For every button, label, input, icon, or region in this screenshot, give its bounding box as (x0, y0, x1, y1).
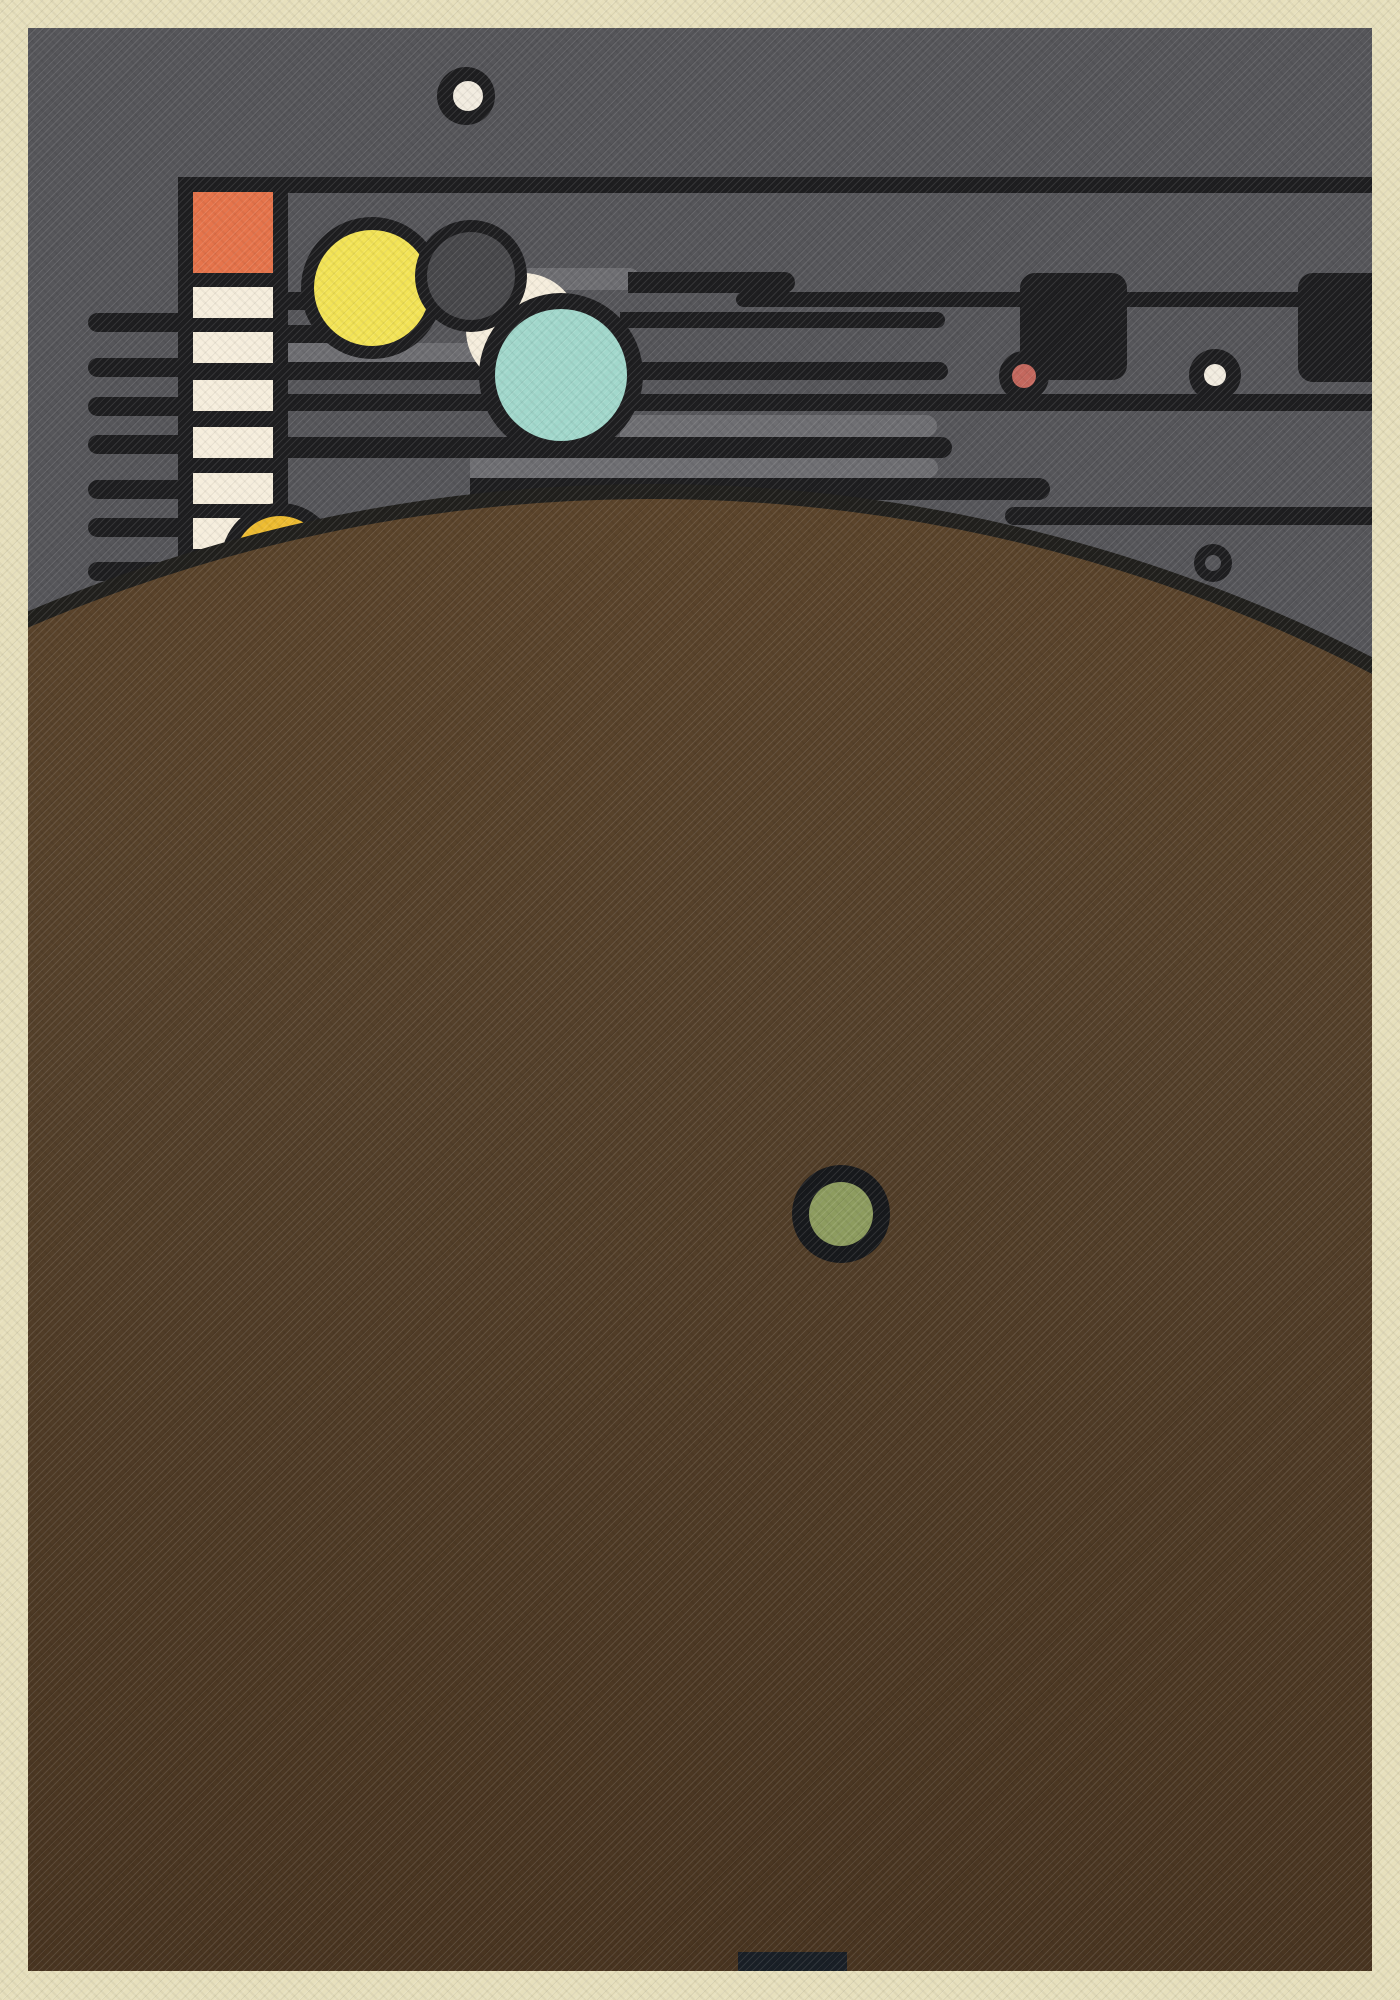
red-dot (1012, 364, 1036, 388)
staff-line-left-2 (88, 358, 192, 377)
ladder-rung-5 (193, 473, 273, 504)
rule-f (288, 437, 952, 458)
frame-left (0, 0, 28, 2000)
light-band-1 (620, 415, 937, 437)
green-dot (809, 1182, 873, 1246)
ladder-orange-cap (193, 192, 273, 273)
brown-dome (0, 499, 1400, 2000)
dark-circle (427, 232, 515, 320)
yellow-circle (314, 230, 430, 346)
staff-line-left-3 (88, 397, 192, 416)
top-rule-line (178, 177, 1372, 193)
staff-line-left-1 (88, 313, 192, 332)
light-band-2 (470, 458, 938, 478)
frame-right (1372, 0, 1400, 2000)
top-dot (453, 81, 483, 111)
ladder-rung-1 (193, 287, 273, 318)
small-donut-hole (1205, 555, 1221, 571)
staff-line-left-6 (88, 518, 192, 537)
frame-top (0, 0, 1400, 28)
poster (0, 0, 1400, 2000)
staff-line-left-5 (88, 480, 192, 499)
signature-mark (738, 1952, 847, 1971)
rule-c (620, 312, 945, 328)
ladder-rung-4 (193, 427, 273, 458)
rule-h-right (1005, 507, 1372, 525)
rule-a (628, 272, 795, 293)
staff-line-left-4 (88, 435, 192, 454)
ladder-rung-3 (193, 380, 273, 411)
ladder-rung-2 (193, 332, 273, 363)
white-dot (1204, 364, 1226, 386)
frame-bottom (0, 1971, 1400, 2000)
teal-circle (495, 309, 627, 441)
